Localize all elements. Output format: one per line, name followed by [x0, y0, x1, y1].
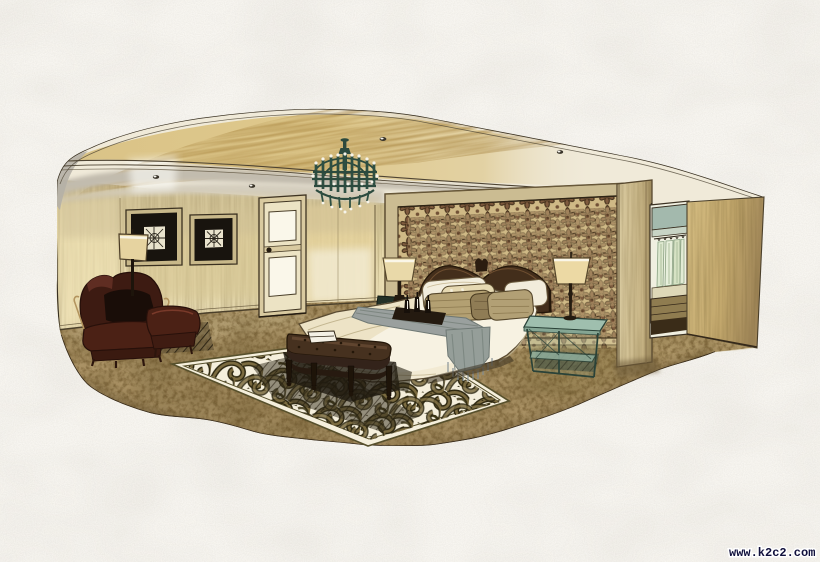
svg-text:www.k2c2.com: www.k2c2.com — [729, 546, 815, 560]
